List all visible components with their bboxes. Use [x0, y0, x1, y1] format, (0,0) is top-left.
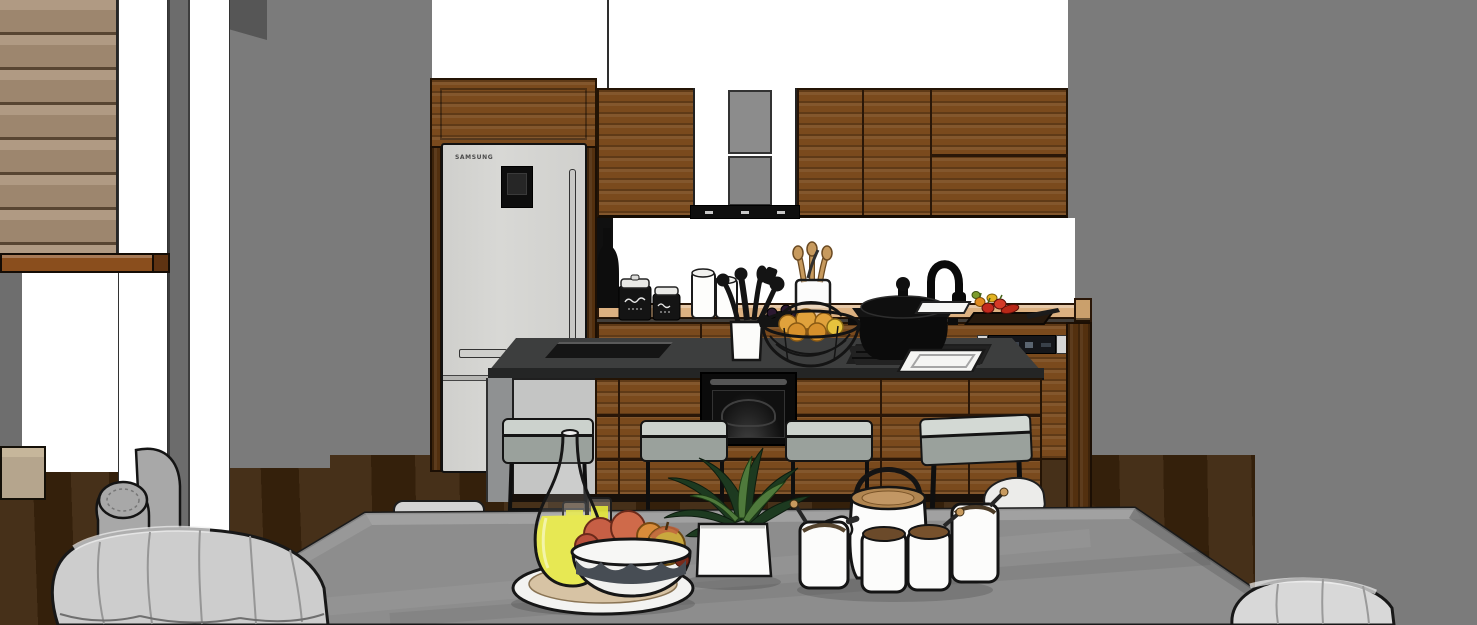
fridge-vent [459, 349, 507, 358]
fridge-handle-top [569, 169, 576, 357]
tall-fridge-cabinet [430, 78, 597, 148]
upper-cabinet-run [597, 88, 1068, 218]
fridge-brand-logo: SAMSUNG [455, 154, 493, 161]
wood-slat-wall [0, 0, 118, 254]
white-canister-tall [952, 488, 1008, 582]
hood-light [705, 211, 713, 214]
fridge-display [501, 166, 533, 208]
cooking-pot [848, 277, 958, 360]
white-canister [862, 527, 906, 592]
beige-sideboard [0, 446, 46, 500]
wall-seam [607, 0, 609, 90]
hood-duct-lower [728, 156, 772, 206]
wood-shelf-endcap [152, 253, 170, 273]
hood-light [777, 211, 785, 214]
dining-chair-front-left [40, 502, 340, 625]
kitchen-render: SAMSUNG [0, 0, 1477, 625]
hood-vent-bar [690, 205, 800, 219]
oven-handle [710, 379, 787, 385]
black-canister-jar [619, 275, 651, 320]
hood-duct-upper [728, 90, 772, 154]
cabinet-seam [930, 90, 932, 215]
dining-chair-front-right [1228, 572, 1398, 625]
bowl-rim [572, 539, 690, 565]
counter-items [590, 220, 1095, 372]
below-shelf-gray [0, 272, 22, 472]
wine-bottle [597, 228, 619, 308]
black-canister-jar [653, 287, 680, 320]
white-square-dish [898, 350, 984, 372]
cutting-board-with-peppers [966, 292, 1060, 325]
fridge-display-screen [507, 173, 527, 195]
table-items [500, 418, 1010, 625]
cabinet-seam-horizontal [930, 154, 1068, 157]
fruit-bowl [572, 511, 690, 596]
white-canister [692, 269, 715, 318]
wood-shelf [0, 253, 170, 273]
cabinet-seam [862, 90, 864, 215]
jar-set [790, 470, 1008, 593]
white-canister [790, 500, 848, 588]
white-counter-tray [916, 302, 970, 313]
cabinet-seam [797, 90, 799, 215]
hood-light [741, 211, 749, 214]
cabinet-panel-line [440, 88, 587, 140]
cube-planter [697, 524, 771, 576]
